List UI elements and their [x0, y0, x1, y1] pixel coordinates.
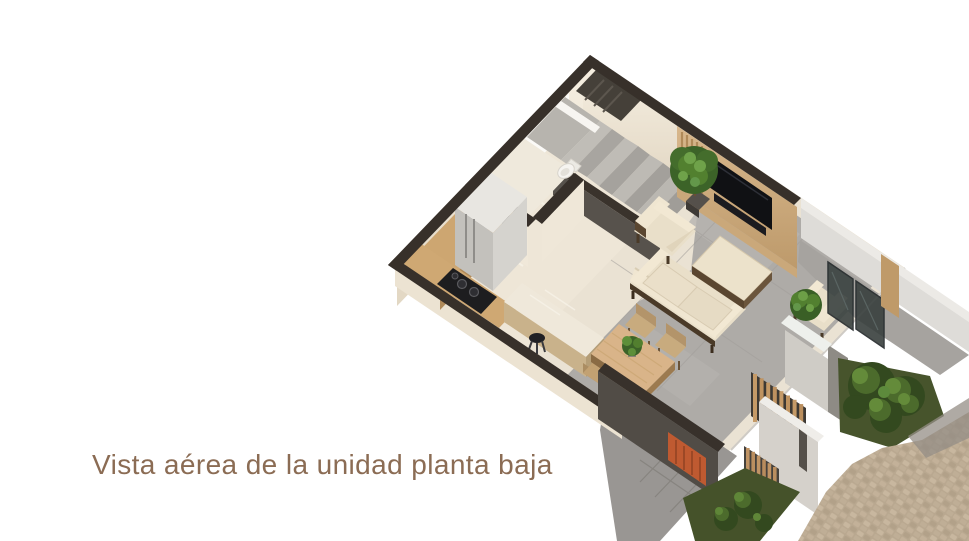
render-canvas: Vista aérea de la unidad planta baja — [0, 0, 969, 541]
caption-text: Vista aérea de la unidad planta baja — [92, 448, 553, 482]
